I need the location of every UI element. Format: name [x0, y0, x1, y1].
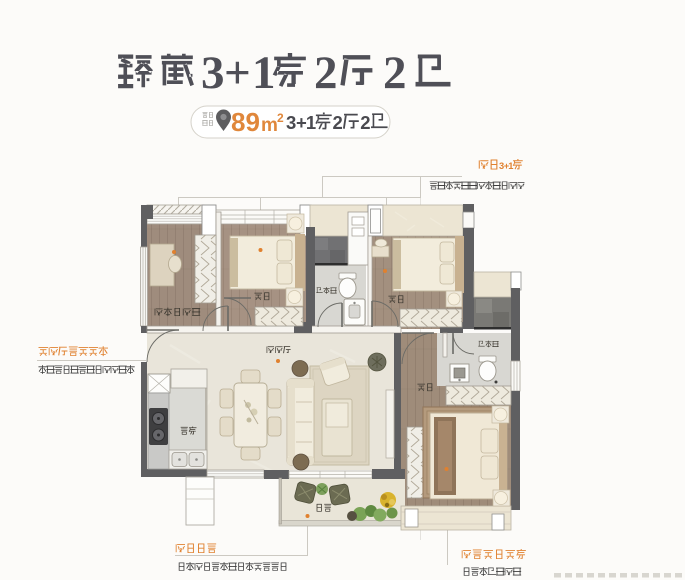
svg-text:m: m [261, 115, 278, 136]
svg-text:3: 3 [286, 112, 296, 133]
svg-text:2: 2 [314, 47, 338, 99]
svg-text:1: 1 [252, 47, 276, 99]
svg-text:2: 2 [333, 112, 343, 133]
svg-text:2: 2 [277, 111, 284, 125]
svg-text:2: 2 [360, 112, 370, 133]
svg-text:2: 2 [383, 47, 407, 99]
svg-text:1: 1 [508, 161, 513, 171]
svg-text:89: 89 [231, 107, 260, 137]
svg-text:1: 1 [306, 112, 316, 133]
svg-text:3: 3 [201, 47, 225, 99]
svg-text:+: + [224, 47, 251, 99]
